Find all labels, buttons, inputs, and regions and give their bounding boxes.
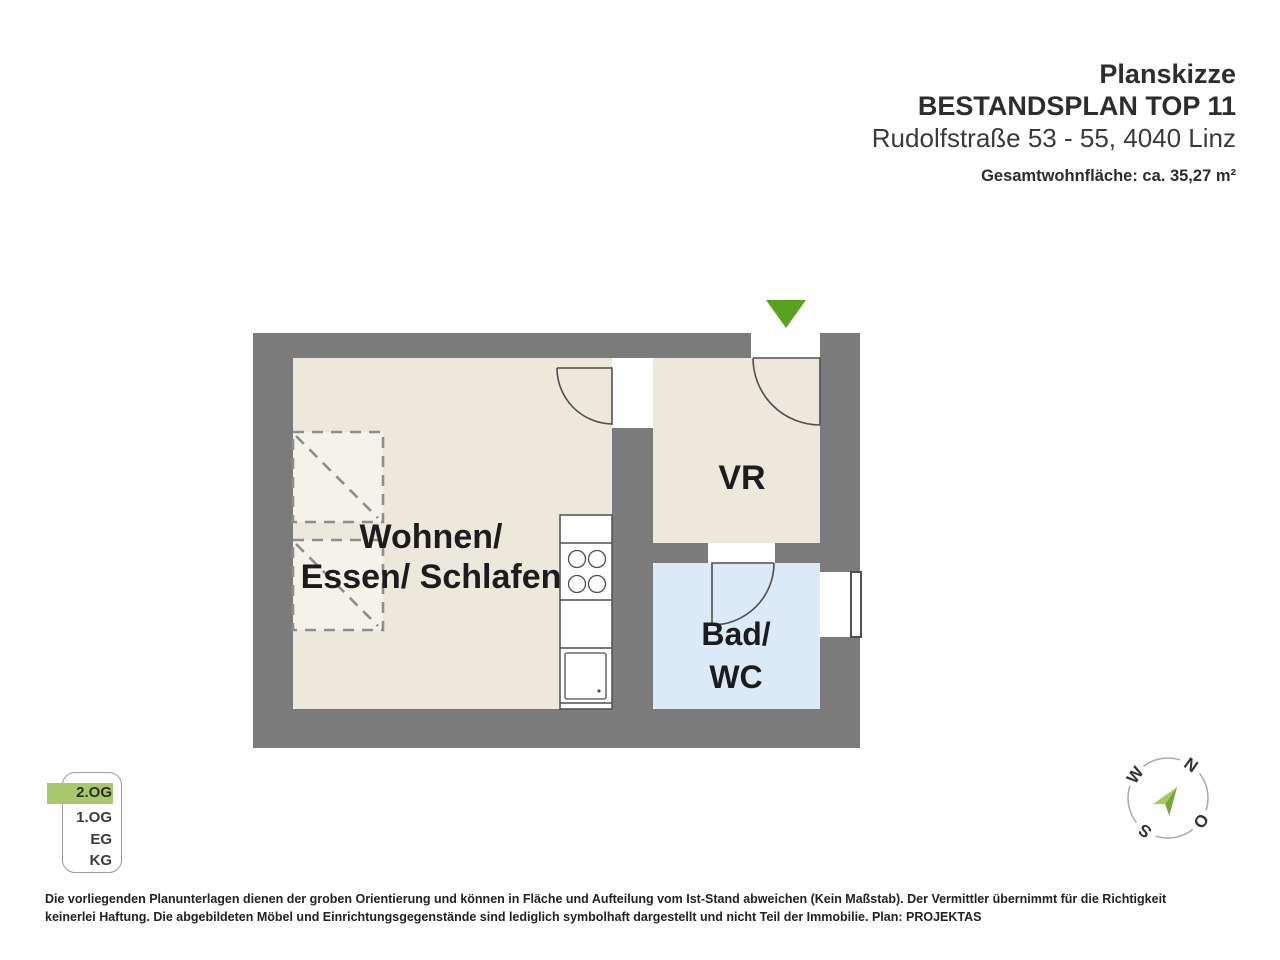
disclaimer-line-2: keinerlei Haftung. Die abgebildeten Möbe… <box>45 908 1166 926</box>
disclaimer-line-1: Die vorliegenden Planunterlagen dienen d… <box>45 890 1166 908</box>
header: Planskizze BESTANDSPLAN TOP 11 Rudolfstr… <box>872 58 1236 186</box>
floor-item-eg[interactable]: EG <box>50 830 112 850</box>
label-bathroom: Bad/ WC <box>666 613 806 699</box>
floor-item-1og[interactable]: 1.OG <box>50 808 112 828</box>
entrance-arrow-icon <box>766 300 806 328</box>
door-living <box>557 368 612 425</box>
plan-name: BESTANDSPLAN TOP 11 <box>872 90 1236 122</box>
floor-plan-page: Planskizze BESTANDSPLAN TOP 11 Rudolfstr… <box>0 0 1280 960</box>
door-entrance <box>753 358 820 425</box>
address: Rudolfstraße 53 - 55, 4040 Linz <box>872 122 1236 154</box>
label-hallway: VR <box>692 459 792 498</box>
label-living-room: Wohnen/ Essen/ Schlafen <box>271 517 591 597</box>
disclaimer: Die vorliegenden Planunterlagen dienen d… <box>45 890 1166 926</box>
compass-rose: N O S W <box>1106 736 1230 860</box>
sink-icon <box>565 653 606 699</box>
total-area: Gesamtwohnfläche: ca. 35,27 m² <box>872 167 1236 186</box>
floor-item-2og[interactable]: 2.OG <box>50 783 112 803</box>
compass-needle-icon <box>1153 781 1185 815</box>
page-title: Planskizze <box>872 58 1236 90</box>
floor-item-kg[interactable]: KG <box>50 851 112 871</box>
